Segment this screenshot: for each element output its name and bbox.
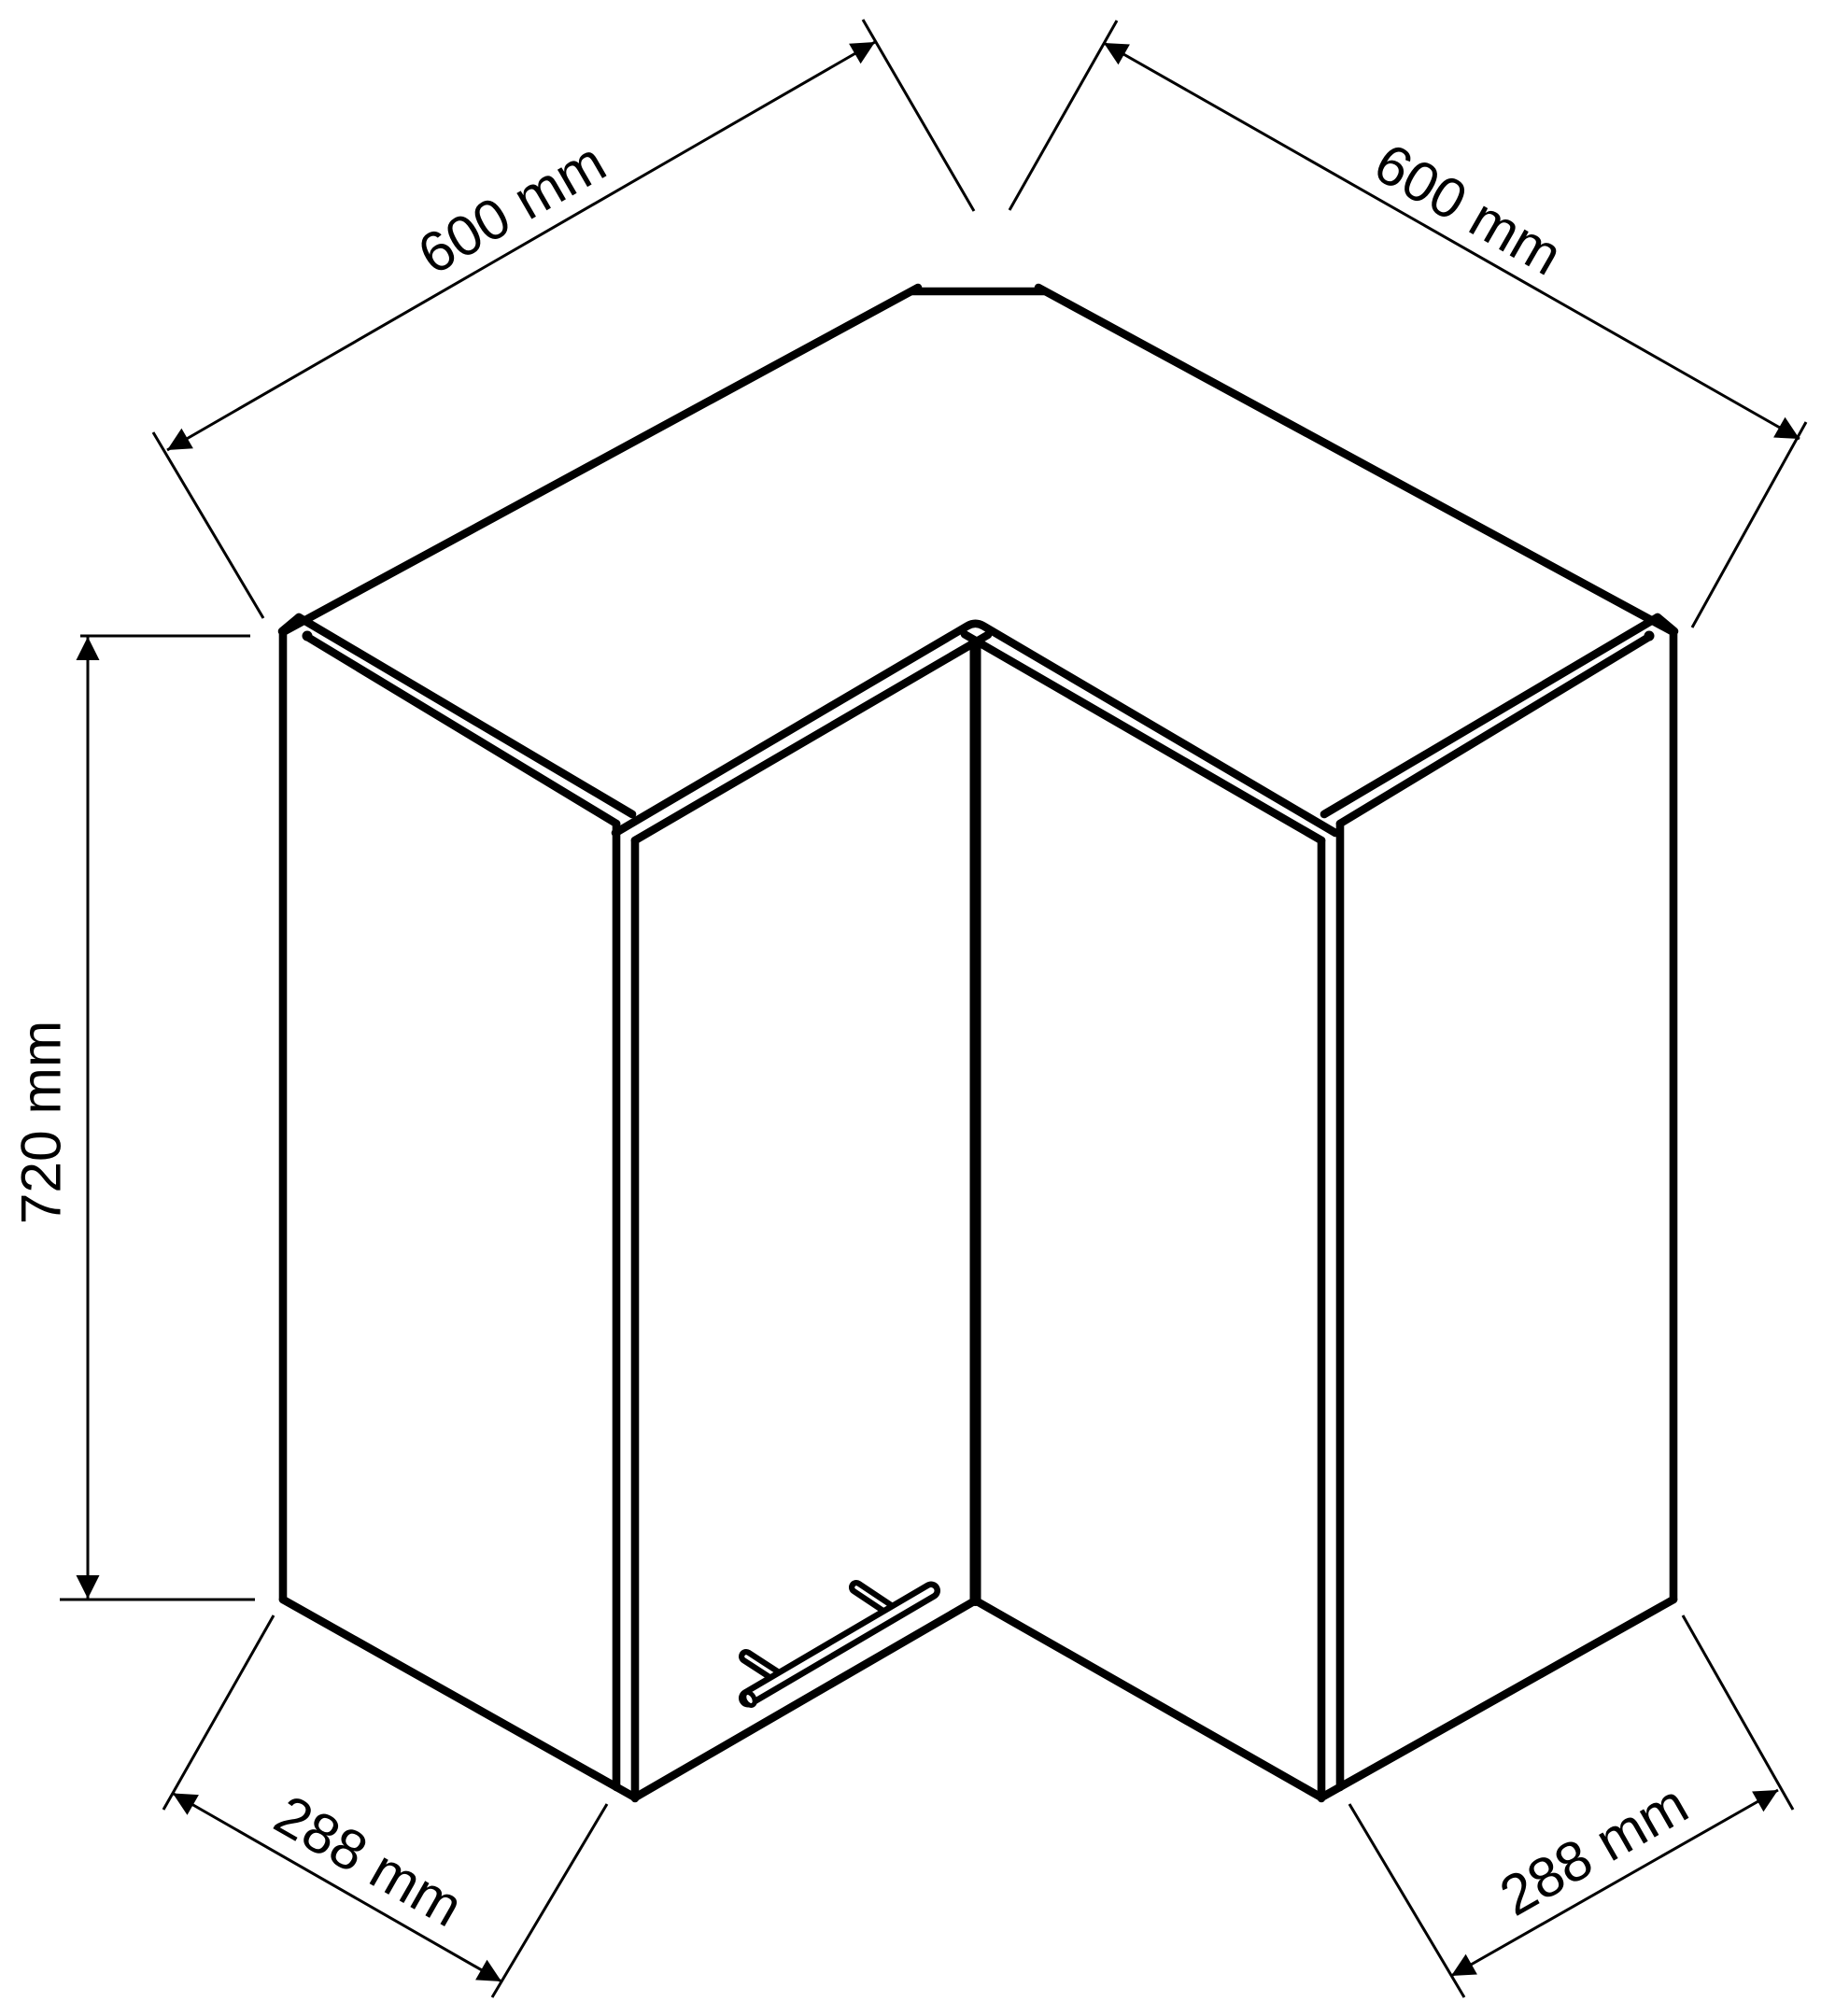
svg-text:720 mm: 720 mm [9, 1021, 73, 1225]
